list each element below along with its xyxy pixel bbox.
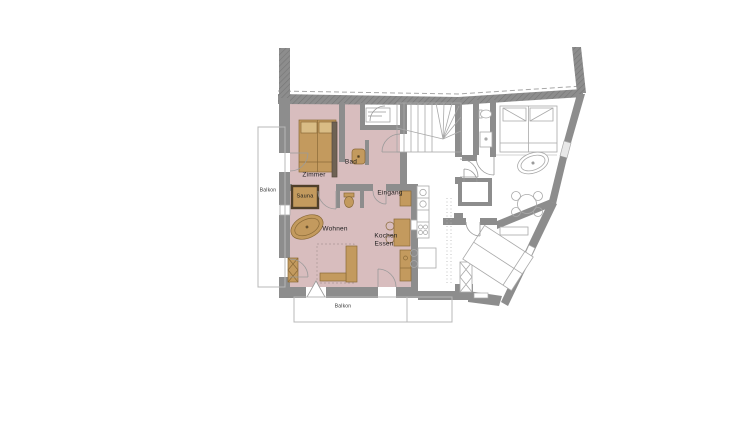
balcony-label-left: Balkon xyxy=(260,188,277,195)
room-label-eingang: Eingang xyxy=(377,190,402,197)
bathroom-wall xyxy=(462,155,477,161)
floor-plan-drawing xyxy=(0,0,754,435)
wc-niche-wall xyxy=(360,191,364,208)
bedroom-wall xyxy=(490,100,496,157)
bathroom-wall xyxy=(473,100,479,155)
corridor-x-cabinet xyxy=(460,262,472,292)
partition-horizontal xyxy=(336,184,373,191)
bottom-wall-seg xyxy=(279,287,306,298)
sofa-horizontal xyxy=(320,273,346,281)
wc-toilet xyxy=(345,197,354,208)
top-wall-stub-left xyxy=(279,48,290,98)
kitchen-counter xyxy=(400,250,411,281)
shaft-wall xyxy=(360,125,400,130)
shaft-box xyxy=(460,180,490,204)
wardrobe-x-box xyxy=(288,258,298,282)
right-wall-lower-seg xyxy=(411,230,418,287)
corridor-dotted-line xyxy=(447,198,451,284)
balcony-bottom-outline xyxy=(294,297,452,322)
floor-plan: Zimmer Bad Sauna Wohnen Eingang Kochen E… xyxy=(0,0,754,435)
room-label-zimmer: Zimmer xyxy=(302,172,325,179)
balcony-label-bottom: Balkon xyxy=(335,304,352,311)
neighbor-furniture xyxy=(411,106,558,292)
bed-pillow xyxy=(301,122,317,133)
shower-partition xyxy=(365,140,369,165)
slant-wall-mid xyxy=(549,156,567,204)
bottom-wall-seg xyxy=(326,287,378,298)
neighbor-wc xyxy=(481,110,492,118)
dining-wall xyxy=(480,218,497,225)
stair-landing-closet xyxy=(366,108,390,122)
neighbor-bath-door xyxy=(476,157,494,175)
stair-hall-door xyxy=(460,159,478,177)
bottom-window xyxy=(474,293,488,298)
wc-niche-wall xyxy=(336,191,340,208)
slant-wall-upper xyxy=(564,94,585,143)
slant-window xyxy=(560,141,571,158)
neighbor-bathtub xyxy=(515,148,552,178)
bottom-wall-seg xyxy=(396,287,418,298)
neighbor-table xyxy=(418,248,436,268)
room-label-wohnen: Wohnen xyxy=(322,226,347,233)
partition-zimmer-bad xyxy=(339,103,345,162)
room-label-sauna: Sauna xyxy=(297,194,314,201)
room-label-bad: Bad xyxy=(345,159,357,166)
right-wall-upper-seg xyxy=(400,152,407,184)
wardrobe xyxy=(332,122,337,177)
neighbor-kitchen-counter xyxy=(417,186,429,238)
neighbor-shelf xyxy=(500,227,528,235)
room-label-kochen: Kochen xyxy=(374,233,397,240)
dining-wall xyxy=(443,218,466,225)
sink-drain xyxy=(357,155,359,157)
sofa-vertical xyxy=(346,246,357,282)
dining-door xyxy=(466,222,480,236)
room-label-essen: Essen xyxy=(374,241,393,248)
